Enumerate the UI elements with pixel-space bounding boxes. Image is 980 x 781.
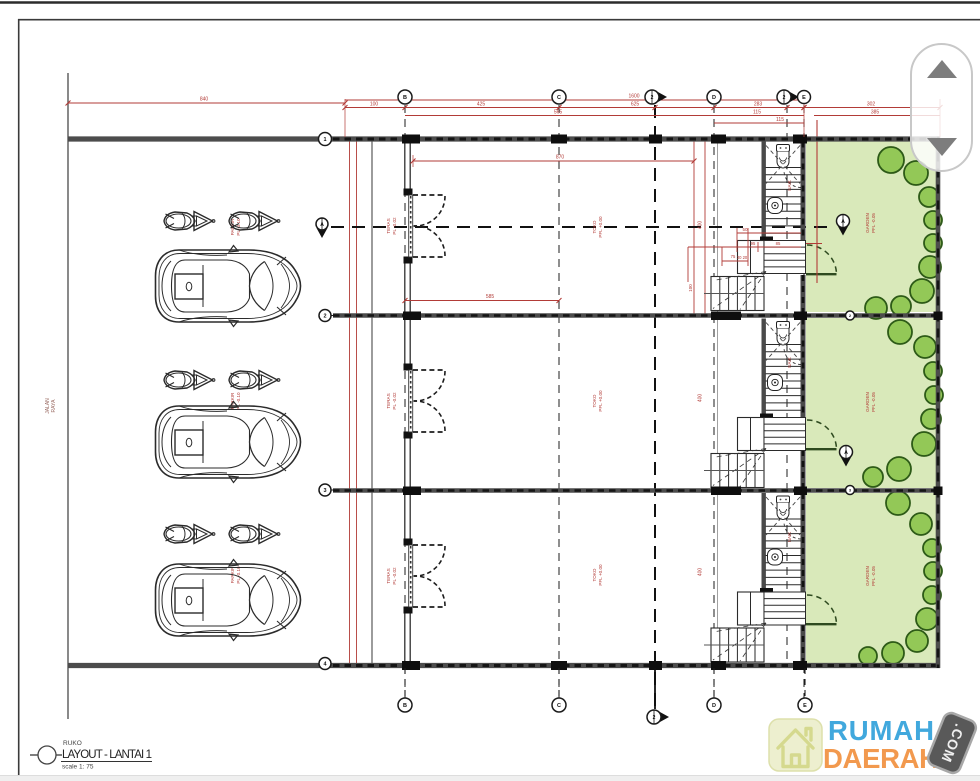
svg-text:PFL +0.00: PFL +0.00 [598,564,603,586]
svg-text:400: 400 [698,221,704,230]
svg-text:PL -0.02: PL -0.02 [392,392,397,410]
svg-text:NAIK: NAIK [787,532,792,543]
svg-text:PFL -0.05: PFL -0.05 [871,392,876,412]
svg-text:302: 302 [867,102,876,108]
svg-text:GARDEN: GARDEN [865,392,870,412]
svg-text:385: 385 [871,110,880,116]
svg-text:400: 400 [698,394,704,403]
svg-text:PFL +0.00: PFL +0.00 [598,390,603,412]
svg-text:115: 115 [776,117,784,123]
svg-text:RUKO: RUKO [63,740,82,747]
svg-text:C: C [557,703,561,709]
svg-text:NAIK: NAIK [787,180,792,191]
svg-text:TOKO: TOKO [592,220,597,233]
svg-text:PFL -0.05: PFL -0.05 [871,566,876,586]
svg-text:115: 115 [753,110,761,116]
svg-text:TERAS: TERAS [386,568,391,583]
svg-text:75: 75 [731,254,736,259]
svg-text:2: 2 [323,313,326,319]
svg-text:D: D [712,703,716,709]
svg-text:PFL -0.05: PFL -0.05 [871,213,876,233]
svg-text:1: 1 [323,137,326,143]
svg-text:425: 425 [477,102,486,108]
svg-text:B: B [403,703,407,709]
svg-text:565: 565 [554,110,563,116]
svg-text:95: 95 [751,241,756,246]
svg-text:PL -0.02: PL -0.02 [392,217,397,235]
svg-text:TERAS: TERAS [386,393,391,408]
svg-text:scale 1: 75: scale 1: 75 [62,764,94,771]
svg-text:100: 100 [370,102,379,108]
svg-text:GARDEN: GARDEN [865,213,870,233]
svg-text:625: 625 [631,102,640,108]
svg-text:30 20: 30 20 [737,255,748,260]
svg-text:PL -0.02: PL -0.02 [392,567,397,585]
svg-text:85: 85 [776,241,781,246]
svg-text:50: 50 [742,227,748,232]
svg-text:3: 3 [323,488,326,494]
svg-text:585: 585 [486,294,495,300]
svg-text:TERAS: TERAS [386,218,391,233]
svg-text:GARDEN: GARDEN [865,566,870,586]
svg-text:RUMAH: RUMAH [828,715,934,746]
svg-text:LAYOUT - LANTAI 1: LAYOUT - LANTAI 1 [62,749,152,761]
svg-text:E: E [802,95,806,101]
svg-text:400: 400 [698,568,704,577]
svg-text:840: 840 [200,97,209,103]
svg-text:DAERAH: DAERAH [823,743,939,774]
svg-text:870: 870 [556,155,565,161]
svg-text:RAYA: RAYA [51,399,57,413]
svg-text:283: 283 [754,102,763,108]
svg-text:1600: 1600 [628,94,639,100]
svg-text:E: E [803,703,807,709]
svg-text:TOKO: TOKO [592,394,597,407]
svg-text:PFL +0.00: PFL +0.00 [598,216,603,238]
svg-text:D: D [712,95,716,101]
svg-text:TOKO: TOKO [592,568,597,581]
svg-text:100: 100 [688,284,693,292]
svg-text:B: B [403,95,407,101]
svg-text:NAIK: NAIK [787,357,792,368]
svg-text:PL -0.10: PL -0.10 [236,566,241,584]
svg-text:C: C [557,95,561,101]
